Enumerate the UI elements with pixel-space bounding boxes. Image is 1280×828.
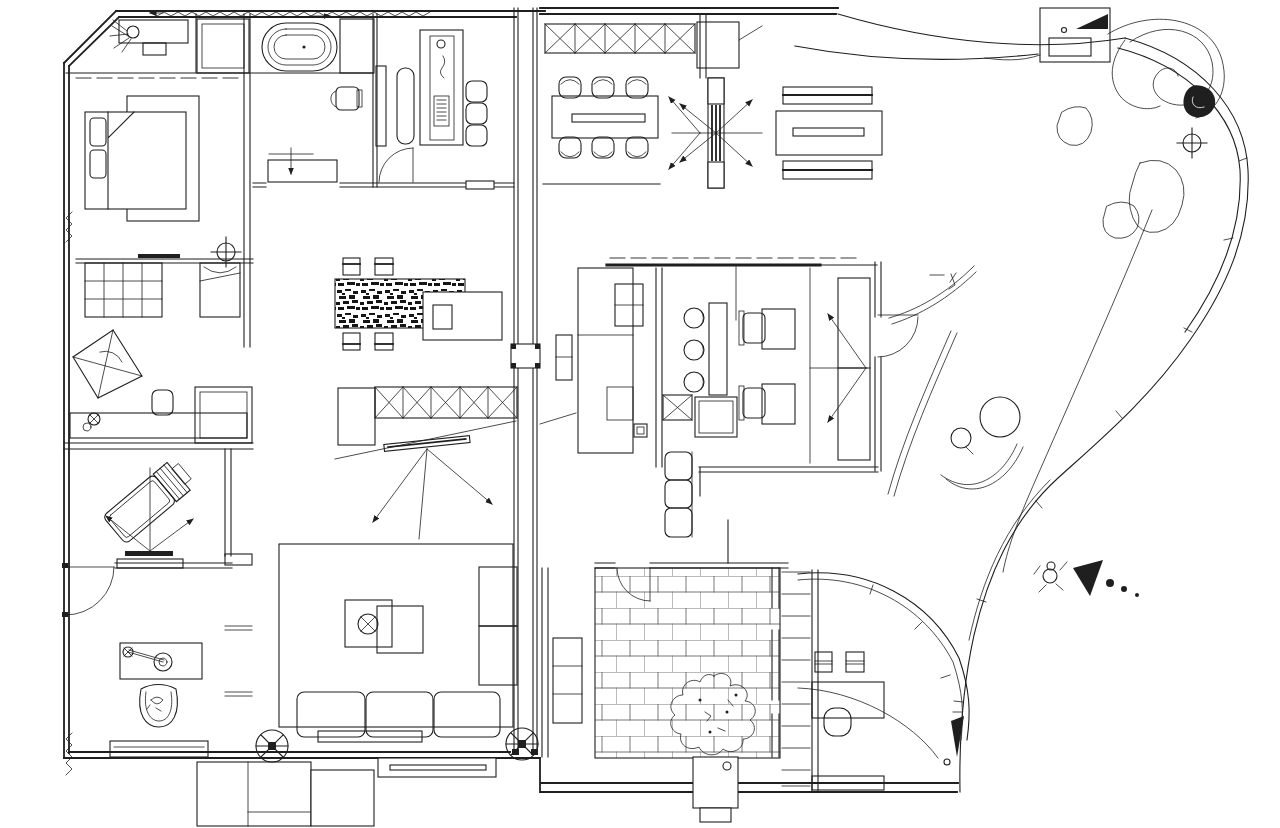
wall-office-bottom: [699, 467, 878, 563]
x-box: [663, 395, 692, 420]
bench-table-set: [776, 87, 882, 179]
wall-left: [64, 63, 69, 758]
cubby-shelf: [85, 263, 162, 317]
entry-direction: [1034, 560, 1139, 597]
pillow-blanket: [200, 267, 240, 281]
drain-icon: [302, 45, 305, 48]
curved-bench: [941, 444, 1023, 489]
pond-icon: [1183, 85, 1215, 117]
wall-chamfer: [64, 11, 119, 66]
den-desk: [812, 682, 884, 718]
curved-partition: [888, 331, 957, 496]
kitchen: [540, 268, 647, 453]
stone-table-set: [335, 258, 502, 350]
cable-squiggle: [440, 56, 444, 78]
garden-stones: [1057, 107, 1184, 239]
person-limbs: [1034, 562, 1067, 592]
bathroom: [197, 16, 374, 182]
wall-bottom-right: [540, 758, 958, 792]
pivot-door: [672, 78, 762, 188]
cabinet-box: [338, 388, 375, 445]
equipment-box: [985, 8, 1110, 62]
workstation: [739, 309, 795, 349]
door-swing-icon: [66, 567, 114, 615]
terrace-garden: [941, 397, 1023, 489]
shelf-rungs: [782, 572, 810, 786]
threshold: [466, 181, 494, 189]
floor-stool: [343, 333, 360, 350]
keyboard: [434, 96, 449, 126]
corner-table: [695, 397, 737, 437]
planter-box: [693, 757, 738, 822]
plant-leaves-icon: [110, 20, 131, 52]
rotating-tv-panel: [373, 436, 492, 539]
media-console: [378, 758, 496, 777]
projection-arrow: [106, 516, 150, 551]
record-player-table: [120, 643, 202, 679]
envelope-ticks: [954, 158, 1247, 702]
slide-arrow: [828, 368, 866, 422]
side-table: [423, 292, 502, 340]
recliner: [103, 457, 197, 544]
vanity-cabinet: [268, 148, 337, 182]
insulation-zigzag: [150, 12, 430, 16]
chair: [466, 125, 487, 146]
spine-wall: [511, 8, 540, 755]
bar-stools: [684, 308, 704, 392]
entry-hall: [665, 78, 1139, 597]
master-bedroom: [66, 12, 430, 242]
floor-plan-page: Residential apartment floor plan - black…: [0, 0, 1280, 828]
exterior-walls: [64, 8, 958, 792]
side-table: [195, 387, 252, 443]
direction-cone-icon: [1073, 560, 1103, 596]
brick-paving: [595, 568, 780, 758]
door-swing-icon: [379, 148, 413, 182]
kite-rug: [73, 330, 142, 398]
survey-point-icon: [1177, 128, 1207, 158]
lounge: [66, 643, 374, 826]
swing-arrow: [669, 97, 700, 133]
wardrobe: [810, 278, 870, 460]
three-seat-sofa: [297, 692, 500, 742]
floor-plan-drawing: Residential apartment floor plan - black…: [0, 0, 1280, 828]
desk-chair: [152, 390, 173, 415]
wall-bath-bottom: [253, 183, 376, 187]
plant-pot-icon: [127, 26, 139, 38]
dining-room: [545, 22, 762, 169]
long-desk: [420, 30, 463, 145]
coffee-tables: [345, 600, 423, 653]
entry-bench: [665, 452, 692, 537]
dining-table: [552, 96, 658, 138]
appliance: [607, 387, 633, 420]
lamp-icon: [437, 40, 445, 48]
wall-patio-top: [595, 563, 788, 568]
view-arrow: [373, 449, 427, 522]
closet-x-row: [545, 24, 695, 53]
shower-inner: [202, 24, 244, 68]
area-rug: [279, 544, 513, 727]
slide-arrow: [828, 314, 866, 368]
person-body-icon: [1043, 569, 1057, 583]
vanity-desk: [110, 20, 188, 55]
site-boundary: [795, 8, 1248, 792]
wall-media-right: [225, 449, 231, 556]
wall-office-right: [875, 262, 881, 471]
wall-dark-bar: [138, 254, 180, 258]
bench: [397, 68, 414, 144]
chair: [466, 81, 487, 102]
patio-bench: [553, 638, 582, 723]
leader-line: [739, 26, 762, 40]
swing-arrow: [669, 133, 700, 169]
side-unit: [556, 335, 572, 380]
media-room: [62, 457, 196, 617]
north-arrow-fill: [1076, 14, 1108, 29]
stool: [634, 424, 647, 437]
basket-chair: [140, 685, 178, 728]
garden-stool: [951, 428, 971, 448]
wall-top-right: [540, 8, 838, 14]
x-cabinet-row: [375, 387, 517, 418]
curved-envelope-outer: [960, 38, 1248, 792]
door-wedge-icon: [951, 716, 964, 757]
wall-den-left: [812, 570, 818, 792]
wall-media-bottom: [115, 563, 232, 568]
guest-bedroom-office: [663, 266, 976, 496]
plan-marks: [930, 273, 956, 289]
bedroom-2: [70, 237, 252, 443]
low-console: [110, 741, 208, 757]
projection-arrow: [150, 519, 193, 551]
shower: [197, 19, 249, 73]
site-line: [1003, 210, 1152, 572]
stool: [846, 652, 864, 672]
chaise-module: [479, 567, 517, 626]
double-bed: [85, 112, 186, 209]
terrace-lower-line: [795, 46, 1038, 59]
curved-envelope-inner: [1118, 48, 1240, 332]
bar-counter: [709, 303, 727, 395]
tall-cabinet: [697, 22, 739, 68]
kitchen-island: [578, 268, 633, 453]
inner-arc: [798, 688, 938, 758]
slide-track-marks: [225, 626, 252, 696]
curved-den: [782, 572, 969, 790]
wall-top-left: [116, 11, 545, 17]
terrace-upper-line: [838, 14, 1125, 45]
bathtub: [262, 16, 337, 71]
cushion-squiggle: [147, 697, 163, 711]
view-arrow: [427, 449, 492, 504]
wall-bedroom2-bottom: [64, 443, 253, 449]
floor-planters: [197, 762, 374, 826]
ceiling-fan-icon: [506, 728, 538, 760]
door-swing-icon: [878, 315, 918, 357]
floor-stool: [375, 258, 393, 275]
workstation: [739, 384, 795, 424]
bath-cabinet: [340, 19, 374, 73]
curved-envelope-glass: [969, 480, 1050, 640]
floor-stool: [343, 258, 360, 275]
desk: [70, 413, 247, 438]
tea-corner: [335, 258, 517, 539]
pivot-point: [944, 759, 950, 765]
wall-office-left: [656, 268, 662, 467]
chair: [466, 103, 487, 124]
single-bed: [200, 263, 240, 317]
tv-screen: [125, 551, 173, 556]
leader-line: [540, 413, 576, 424]
wall-patio-left: [542, 568, 548, 757]
round-table: [980, 397, 1020, 437]
den-chair: [824, 708, 851, 736]
floor-stool: [375, 333, 393, 350]
dressing-study: [376, 30, 487, 182]
chaise-module: [479, 626, 517, 685]
toilet: [331, 87, 362, 110]
living-room: [256, 544, 538, 777]
view-line: [419, 449, 427, 539]
